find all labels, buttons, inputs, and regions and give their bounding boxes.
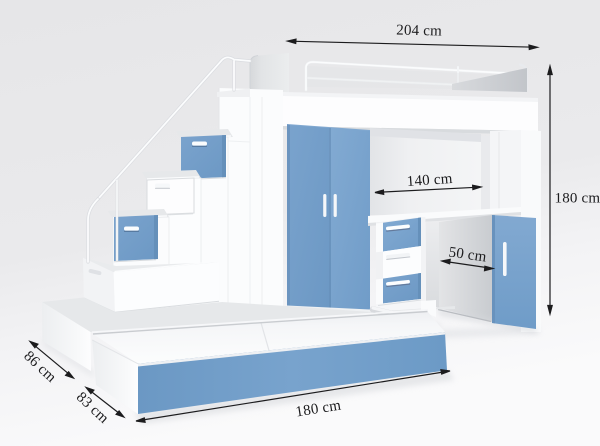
svg-text:204 cm: 204 cm	[396, 22, 442, 39]
svg-text:180 cm: 180 cm	[555, 191, 600, 207]
svg-text:140 cm: 140 cm	[406, 171, 453, 190]
